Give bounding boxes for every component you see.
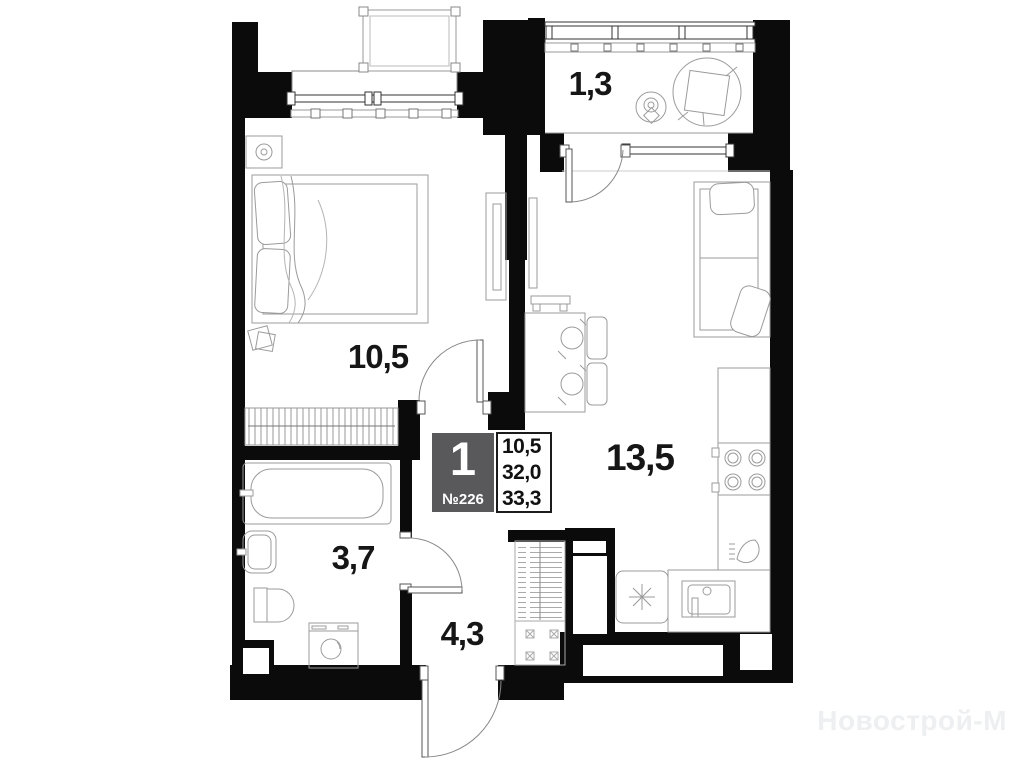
floor-plan: 10,5 13,5 1,3 3,7 4,3 1 №226 10,5 32,0 3… bbox=[0, 0, 1017, 768]
sofa-bed bbox=[694, 182, 773, 339]
living-tv-panel bbox=[529, 198, 570, 311]
toilet bbox=[254, 588, 294, 622]
floor-plan-drawing bbox=[0, 0, 1017, 768]
bathtub bbox=[240, 463, 391, 524]
area-without-balcony: 32,0 bbox=[502, 462, 550, 483]
hallway-closet bbox=[515, 541, 565, 665]
bedroom-window bbox=[287, 71, 463, 118]
bedroom-wardrobe bbox=[245, 408, 398, 445]
round-chair bbox=[673, 58, 741, 126]
unit-areas-box: 10,5 32,0 33,3 bbox=[496, 432, 552, 513]
balcony-stool bbox=[636, 92, 666, 123]
unit-number: №226 bbox=[432, 491, 494, 508]
room-label-bathroom: 3,7 bbox=[332, 539, 375, 577]
stove bbox=[712, 443, 770, 495]
double-bed bbox=[252, 175, 428, 323]
unit-info-box: 1 №226 bbox=[432, 433, 494, 512]
room-label-hallway: 4,3 bbox=[441, 615, 484, 653]
fridge bbox=[616, 571, 668, 623]
bedside-rug bbox=[248, 326, 275, 352]
bedroom-door bbox=[417, 340, 491, 414]
room-label-living-kitchen: 13,5 bbox=[606, 437, 674, 479]
area-total: 33,3 bbox=[502, 488, 550, 509]
open-balcony-outline bbox=[359, 7, 460, 72]
entrance-door bbox=[420, 666, 504, 757]
washing-machine bbox=[309, 623, 358, 668]
room-label-bedroom: 10,5 bbox=[348, 338, 408, 376]
room-label-balcony: 1,3 bbox=[569, 65, 612, 103]
developer-watermark: Новострой-М bbox=[817, 705, 1007, 737]
unit-rooms-count: 1 bbox=[432, 436, 494, 482]
bathroom-door bbox=[400, 532, 462, 593]
balcony-door bbox=[560, 145, 630, 202]
bedroom-tv-panel bbox=[486, 193, 506, 300]
nightstand bbox=[246, 136, 282, 168]
kitchen-counter bbox=[668, 368, 770, 632]
area-living: 10,5 bbox=[502, 436, 550, 457]
